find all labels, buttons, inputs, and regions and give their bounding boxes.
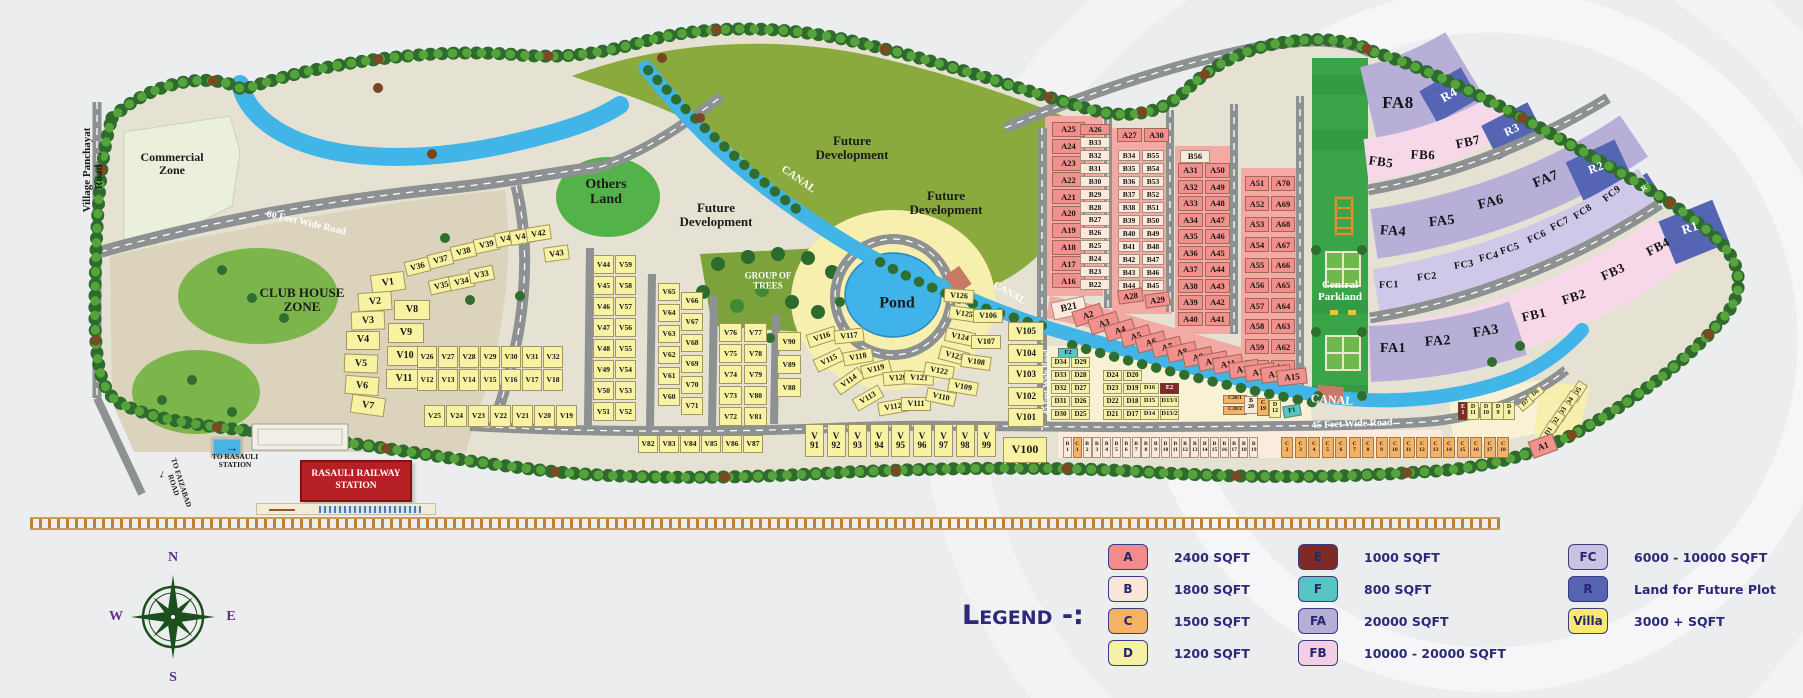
legend-swatch-Villa: Villa [1568, 608, 1608, 634]
legend-row-FC: FC6000 - 10000 SQFT [1568, 544, 1776, 570]
legend-desc-Villa: 3000 + SQFT [1634, 614, 1725, 629]
legend-column-2: E1000 SQFTF800 SQFTFA20000 SQFTFB10000 -… [1298, 544, 1506, 672]
legend-row-A: A2400 SQFT [1108, 544, 1250, 570]
platform-mark [269, 509, 295, 511]
legend-swatch-D: D [1108, 640, 1148, 666]
legend-swatch-FC: FC [1568, 544, 1608, 570]
legend-column-1: A2400 SQFTB1800 SQFTC1500 SQFTD1200 SQFT [1108, 544, 1250, 672]
legend-swatch-R: R [1568, 576, 1608, 602]
compass-n: N [168, 550, 178, 566]
legend-swatch-FB: FB [1298, 640, 1338, 666]
railway-track [30, 517, 1500, 530]
legend-desc-FB: 10000 - 20000 SQFT [1364, 646, 1506, 661]
strip-underlay [1058, 430, 1442, 458]
legend-swatch-F: F [1298, 576, 1338, 602]
legend-swatch-E: E [1298, 544, 1338, 570]
legend-swatch-FA: FA [1298, 608, 1338, 634]
compass-e: E [226, 609, 235, 625]
legend-row-D: D1200 SQFT [1108, 640, 1250, 666]
legend-desc-B: 1800 SQFT [1174, 582, 1250, 597]
legend-row-E: E1000 SQFT [1298, 544, 1506, 570]
legend-desc-F: 800 SQFT [1364, 582, 1431, 597]
compass-w: W [109, 609, 123, 625]
compass-rose [115, 550, 235, 685]
legend-row-F: F800 SQFT [1298, 576, 1506, 602]
fan-band-fa123 [1370, 328, 1518, 354]
swimming-pool [212, 438, 242, 456]
legend-title: Legend -: [962, 600, 1084, 631]
compass-s: S [169, 670, 177, 686]
legend-row-Villa: Villa3000 + SQFT [1568, 608, 1776, 634]
legend-swatch-A: A [1108, 544, 1148, 570]
legend-swatch-B: B [1108, 576, 1148, 602]
site-plan-map: V1V2V3V4V5V6V7V8V9V10V11V26V27V28V29V30V… [0, 0, 1803, 698]
legend-swatch-C: C [1108, 608, 1148, 634]
platform-hatch [319, 506, 421, 513]
legend-desc-R: Land for Future Plot [1634, 582, 1776, 597]
legend-row-FB: FB10000 - 20000 SQFT [1298, 640, 1506, 666]
legend-row-R: RLand for Future Plot [1568, 576, 1776, 602]
station-platform [256, 503, 436, 515]
club-green [178, 248, 338, 344]
legend-desc-D: 1200 SQFT [1174, 646, 1250, 661]
legend-row-FA: FA20000 SQFT [1298, 608, 1506, 634]
station-sign: RASAULI RAILWAY STATION [300, 460, 412, 502]
legend-desc-C: 1500 SQFT [1174, 614, 1250, 629]
legend-row-B: B1800 SQFT [1108, 576, 1250, 602]
club-house-building [252, 424, 348, 450]
legend-desc-FC: 6000 - 10000 SQFT [1634, 550, 1767, 565]
legend-column-3: FC6000 - 10000 SQFTRLand for Future Plot… [1568, 544, 1776, 640]
legend-desc-E: 1000 SQFT [1364, 550, 1440, 565]
legend-desc-A: 2400 SQFT [1174, 550, 1250, 565]
map-base-svg [0, 0, 1803, 698]
legend-desc-FA: 20000 SQFT [1364, 614, 1449, 629]
legend-row-C: C1500 SQFT [1108, 608, 1250, 634]
